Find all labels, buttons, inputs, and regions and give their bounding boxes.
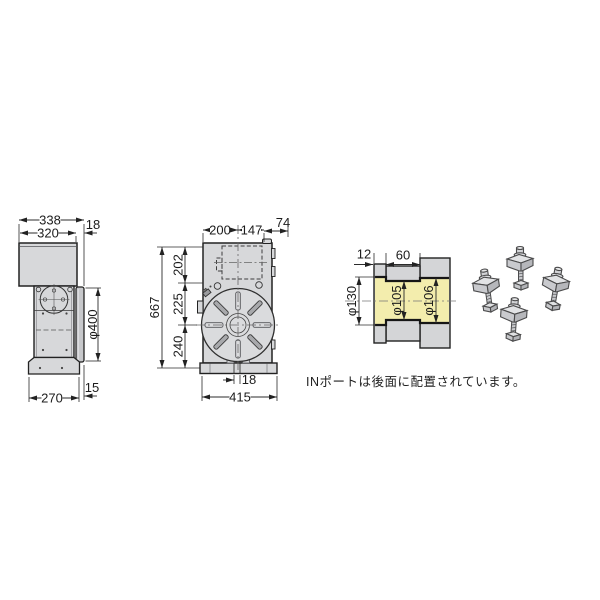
dim-320-label: 320 [37, 226, 59, 241]
dim-200-label: 200 [209, 223, 231, 238]
dim-415-label: 415 [229, 390, 251, 405]
dim-202-label: 202 [171, 254, 186, 276]
dim-74-label: 74 [276, 215, 290, 230]
in-port-note: INポートは後面に配置されています。 [306, 371, 526, 390]
section-view: 12 60 φ130 φ105 φ106 [344, 247, 456, 349]
dim-18-slot-label: 18 [242, 372, 256, 387]
clamp-1 [507, 247, 533, 291]
dim-270-label: 270 [41, 391, 63, 406]
dim-18-side-label: 18 [86, 217, 100, 232]
dim-phi130-label: φ130 [344, 286, 359, 316]
dim-15-label: 15 [85, 380, 99, 395]
side-base [29, 358, 80, 375]
dim-240-label: 240 [171, 336, 186, 358]
technical-drawing-page: 338 320 18 φ400 270 15 [0, 0, 600, 600]
dim-phi400-label: φ400 [85, 309, 100, 339]
clamp-4 [499, 297, 528, 342]
dim-147-label: 147 [241, 223, 263, 238]
front-view: 200 147 74 667 202 225 240 18 415 [147, 215, 290, 405]
clamp-2 [538, 265, 571, 312]
dim-667-label: 667 [147, 297, 162, 319]
dim-phi106-label: φ106 [421, 285, 436, 315]
clamp-3 [471, 267, 503, 314]
dim-12-label: 12 [357, 247, 371, 262]
clamp-set [471, 247, 571, 342]
side-motor-cover [19, 243, 77, 286]
dimension-drawing: 338 320 18 φ400 270 15 [0, 0, 600, 600]
side-view: 338 320 18 φ400 270 15 [19, 213, 101, 406]
front-base [200, 363, 277, 374]
side-table-plate [76, 287, 84, 362]
dim-225-label: 225 [171, 293, 186, 315]
dim-phi105-label: φ105 [389, 285, 404, 315]
dim-60-label: 60 [396, 248, 410, 263]
